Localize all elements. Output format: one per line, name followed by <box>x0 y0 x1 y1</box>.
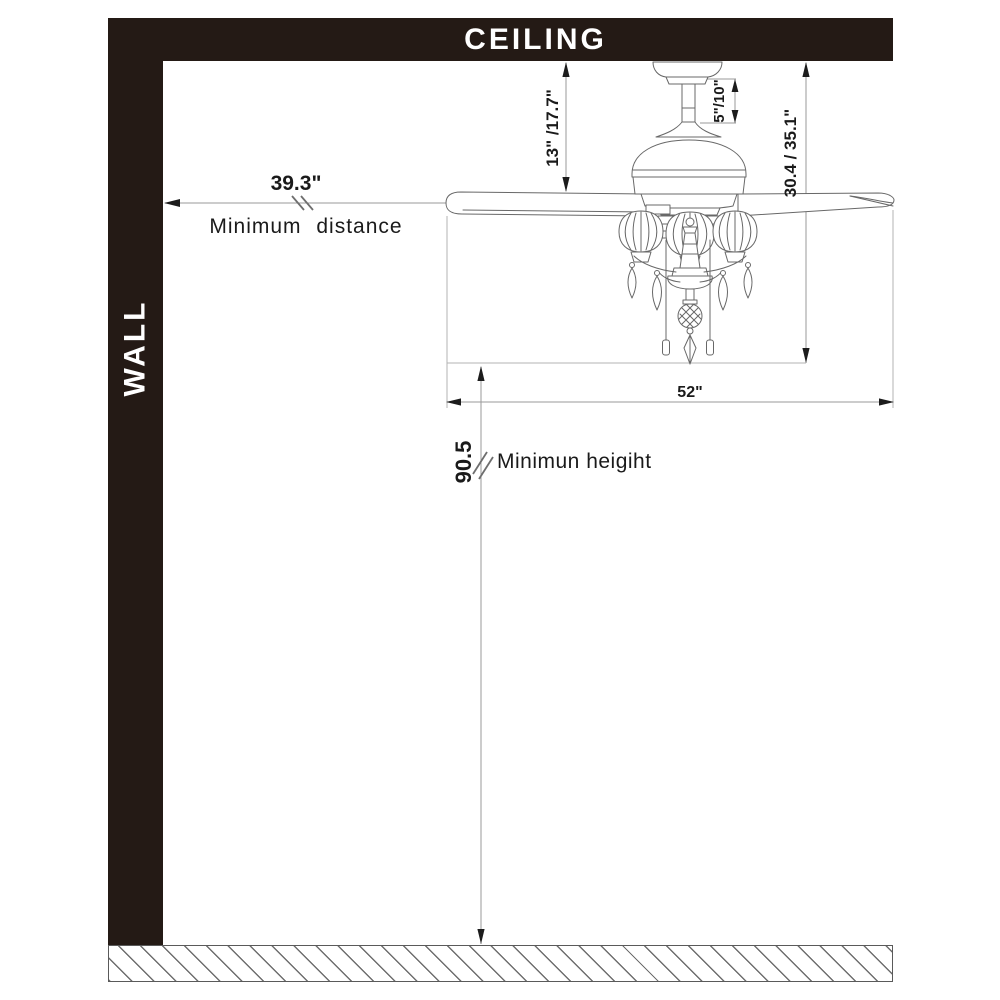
fan-motor-housing <box>632 140 746 215</box>
min-distance-label: Minimum distance <box>196 215 416 239</box>
dimension-line-hanger-height <box>562 62 569 192</box>
wall-bar <box>108 18 163 945</box>
min-height-value: 90.5 <box>452 417 476 507</box>
blade-sweep-value: 52" <box>650 384 730 402</box>
dimension-line-min-distance <box>164 196 447 210</box>
min-distance-value: 39.3" <box>196 172 396 196</box>
floor-hatch <box>108 945 893 982</box>
min-height-label: Minimun heigiht <box>497 450 652 474</box>
ceiling-label: CEILING <box>464 23 607 57</box>
wall-label: WALL <box>119 299 153 396</box>
ceiling-bar: CEILING <box>108 18 893 61</box>
hanger-height-value: 13" /17.7" <box>543 63 563 193</box>
total-height-value: 30.4 / 35.1" <box>781 88 801 218</box>
wall-label-wrap: WALL <box>108 240 163 455</box>
ceiling-fan-drawing <box>446 62 894 364</box>
downrod-length-value: 5"/10" <box>711 62 727 140</box>
chandelier-light-kit <box>619 211 757 364</box>
